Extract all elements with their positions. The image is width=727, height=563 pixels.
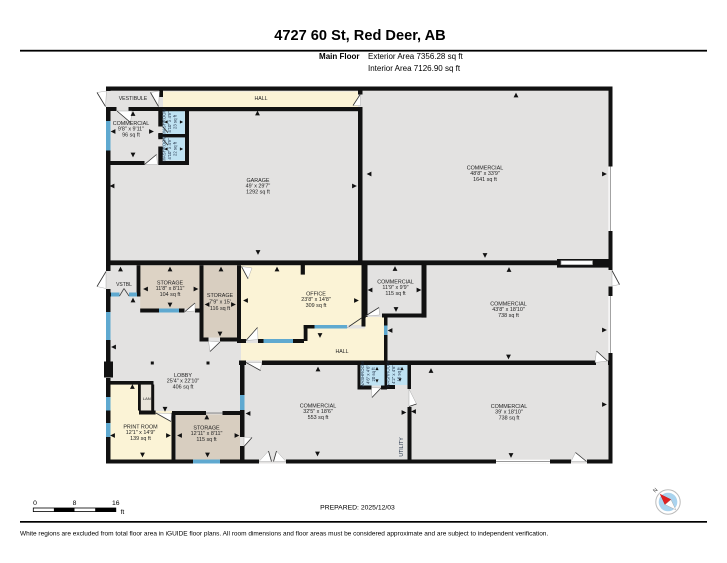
svg-text:VSTBL: VSTBL <box>116 282 132 288</box>
svg-text:UTILITY: UTILITY <box>399 437 405 457</box>
svg-text:STORAGE: STORAGE <box>207 293 234 299</box>
svg-text:16: 16 <box>112 500 120 507</box>
svg-text:23 sq ft: 23 sq ft <box>172 114 177 129</box>
svg-text:8: 8 <box>73 500 77 507</box>
svg-text:Interior Area 7126.90 sq ft: Interior Area 7126.90 sq ft <box>368 64 461 73</box>
svg-text:White regions are excluded fro: White regions are excluded from total fl… <box>20 531 548 538</box>
svg-text:104 sq ft: 104 sq ft <box>160 292 181 298</box>
svg-text:309 sq ft: 309 sq ft <box>306 303 327 309</box>
svg-text:7'9" x 15': 7'9" x 15' <box>209 300 231 306</box>
svg-text:96 sq ft: 96 sq ft <box>122 132 140 138</box>
svg-text:20 sq ft: 20 sq ft <box>371 367 376 382</box>
svg-text:LAN: LAN <box>143 396 151 401</box>
svg-text:WASHROOM: WASHROOM <box>360 361 365 388</box>
svg-text:738 sq ft: 738 sq ft <box>498 313 519 319</box>
svg-text:N: N <box>652 487 659 494</box>
svg-text:16 sq ft: 16 sq ft <box>397 367 402 382</box>
svg-text:22 sq ft: 22 sq ft <box>172 141 177 156</box>
svg-text:4'6" x 4'6": 4'6" x 4'6" <box>366 365 371 384</box>
svg-text:1292 sq ft: 1292 sq ft <box>246 189 270 195</box>
svg-text:WASHROOM: WASHROOM <box>161 109 166 136</box>
svg-text:116 sq ft: 116 sq ft <box>210 306 231 312</box>
svg-text:HALL: HALL <box>255 96 268 102</box>
svg-text:4727 60 St, Red Deer, AB: 4727 60 St, Red Deer, AB <box>274 28 445 44</box>
svg-text:ft: ft <box>121 509 125 516</box>
svg-text:Exterior Area 7356.28 sq ft: Exterior Area 7356.28 sq ft <box>368 52 464 61</box>
svg-text:HALL: HALL <box>336 349 349 355</box>
svg-text:115 sq ft: 115 sq ft <box>196 437 217 443</box>
svg-text:406 sq ft: 406 sq ft <box>173 384 194 390</box>
svg-text:Main Floor: Main Floor <box>319 52 359 61</box>
svg-text:PREPARED: 2025/12/03: PREPARED: 2025/12/03 <box>320 505 395 512</box>
svg-text:738 sq ft: 738 sq ft <box>499 415 520 421</box>
svg-text:0: 0 <box>33 500 37 507</box>
svg-text:4'10" x 4'9": 4'10" x 4'9" <box>167 138 172 160</box>
svg-text:WASHROOM: WASHROOM <box>386 361 391 388</box>
svg-text:4'10" x 4'9": 4'10" x 4'9" <box>167 111 172 133</box>
svg-text:115 sq ft: 115 sq ft <box>385 291 406 297</box>
svg-text:WASHROOM: WASHROOM <box>161 136 166 163</box>
svg-text:139 sq ft: 139 sq ft <box>130 436 151 442</box>
svg-text:4'2" x 4'6": 4'2" x 4'6" <box>391 365 396 384</box>
svg-text:VESTIBULE: VESTIBULE <box>119 96 148 102</box>
svg-text:1641 sq ft: 1641 sq ft <box>473 177 497 183</box>
svg-text:553 sq ft: 553 sq ft <box>308 415 329 421</box>
